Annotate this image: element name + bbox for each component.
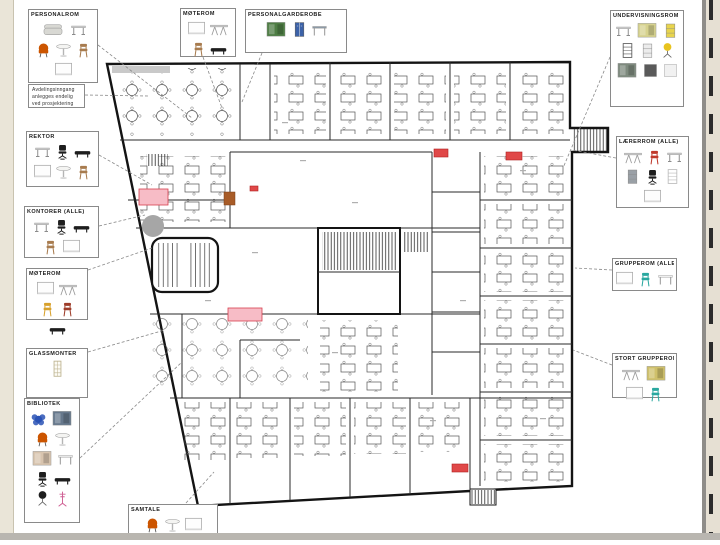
photo-thumb [29, 449, 55, 468]
callout-moterom[interactable]: MØTEROM [180, 8, 236, 57]
amphitheatre [152, 238, 218, 292]
locker-thumb [290, 20, 309, 39]
photo-thumb [614, 61, 640, 80]
chair-thumb [189, 39, 208, 58]
trestle-table-thumb [622, 147, 644, 166]
callout-title: MØTEROM [29, 271, 85, 278]
callout-title: GRUPPEROM (ALLE) [615, 261, 674, 268]
callout-title: SAMTALE [131, 507, 215, 514]
annotation-note[interactable]: Avdelingsinngang anlegges endelig ved pr… [28, 84, 85, 108]
callout-title: REKTOR [29, 134, 96, 141]
bench-thumb [209, 39, 228, 58]
whiteboard-thumb [53, 60, 74, 79]
callout-personalrom[interactable]: PERSONALROM [28, 9, 98, 83]
callout-title: PERSONALROM [31, 12, 95, 19]
bench-thumb [53, 469, 72, 488]
armchair-thumb [33, 429, 52, 448]
note-line: ved prosjektering [32, 101, 81, 108]
callout-title: GLASSMONTER [29, 351, 85, 358]
callout-bibliotek[interactable]: BIBLIOTEK [24, 398, 80, 523]
callout-title: LÆRERROM (ALLE) [619, 139, 686, 146]
round-table-thumb [53, 429, 72, 448]
chair-thumb [74, 162, 93, 181]
whiteboard-thumb [624, 384, 645, 403]
whiteboard-thumb [614, 269, 635, 288]
furniture-thumbnails [29, 359, 85, 378]
table-thumb [56, 449, 75, 468]
desk-thumb [32, 217, 51, 236]
sofa-thumb [38, 20, 68, 39]
trestle-table-thumb [208, 19, 230, 38]
whiteboard-thumb [32, 162, 53, 181]
bench-thumb [48, 319, 67, 338]
furniture-thumbnails [27, 409, 77, 508]
office-chair-thumb [33, 469, 52, 488]
table-thumb [310, 20, 329, 39]
chair-thumb [41, 237, 60, 256]
round-table-thumb [54, 40, 73, 59]
callout-grupperom[interactable]: GRUPPEROM (ALLE) [612, 258, 677, 291]
note-line: anlegges endelig [32, 94, 81, 101]
callout-title: UNDERVISNINGSROM (ALLE) [613, 13, 681, 20]
whiteboard-thumb [186, 19, 207, 38]
chair-thumb [636, 269, 655, 288]
furniture-thumbnails [131, 515, 215, 534]
shelf-thumb [618, 41, 637, 60]
furniture-thumbnails [31, 20, 95, 79]
callout-title: STORT GRUPPEROM [615, 356, 674, 363]
callout-rektor[interactable]: REKTOR [26, 131, 99, 187]
whiteboard-thumb [35, 279, 56, 298]
whiteboard-thumb [642, 187, 663, 206]
chair-thumb [646, 384, 665, 403]
desk-thumb [614, 21, 633, 40]
furniture-thumbnails [29, 279, 85, 338]
chair-thumb [58, 299, 77, 318]
bench-thumb [73, 142, 92, 161]
armchair-thumb [143, 515, 162, 534]
shelf-thumb [663, 167, 682, 186]
furniture-thumbnails [619, 147, 686, 206]
callout-title: PERSONALGARDEROBE [248, 12, 344, 19]
round-table-thumb [163, 515, 182, 534]
pouf-thumb [29, 409, 48, 428]
whiteboard-thumb [183, 515, 204, 534]
table-thumb [656, 269, 675, 288]
panel-thumb [641, 61, 660, 80]
cabinet-thumb [638, 41, 657, 60]
trestle-table-thumb [57, 279, 79, 298]
furniture-thumbnails [615, 364, 674, 403]
furniture-thumbnails [248, 20, 344, 39]
photo-thumb [263, 20, 289, 39]
photo-thumb [643, 364, 669, 383]
callout-personalgarderobe[interactable]: PERSONALGARDEROBE [245, 9, 347, 53]
armchair-thumb [34, 40, 53, 59]
desk-thumb [33, 142, 52, 161]
office-chair-thumb [643, 167, 662, 186]
display-cabinet-thumb [48, 359, 67, 378]
furniture-thumbnails [29, 142, 96, 181]
furniture-thumbnails [27, 217, 96, 256]
stool-thumb [33, 489, 52, 508]
photo-thumb [49, 409, 75, 428]
cabinet-thumb [623, 167, 642, 186]
desk-thumb [69, 20, 88, 39]
office-chair-thumb [52, 217, 71, 236]
furniture-thumbnails [615, 269, 674, 288]
desk-thumb [665, 147, 684, 166]
office-chair-thumb [53, 142, 72, 161]
chair-thumb [38, 299, 57, 318]
gray-circle-marker [142, 215, 164, 237]
coat-stand-thumb [53, 489, 72, 508]
panel-thumb [661, 61, 680, 80]
callout-title: BIBLIOTEK [27, 401, 77, 408]
orange-room-marker [224, 192, 235, 205]
callout-glassmonter[interactable]: GLASSMONTER [26, 348, 88, 398]
round-table-thumb [54, 162, 73, 181]
callout-title: KONTORER (ALLE) [27, 209, 96, 216]
callout-title: MØTEROM [183, 11, 233, 18]
photo-thumb [634, 21, 660, 40]
chair-thumb [645, 147, 664, 166]
chair-thumb [74, 40, 93, 59]
cabinet-thumb [661, 21, 680, 40]
whiteboard-thumb [61, 237, 82, 256]
callout-kontorer[interactable]: KONTORER (ALLE) [24, 206, 99, 258]
trestle-table-thumb [620, 364, 642, 383]
bench-thumb [72, 217, 91, 236]
callout-moterom-2[interactable]: MØTEROM [26, 268, 88, 320]
stage-strip [112, 66, 170, 73]
furniture-thumbnails [183, 19, 233, 58]
callout-undervisningsrom[interactable]: UNDERVISNINGSROM (ALLE) [610, 10, 684, 107]
note-line: Avdelingsinngang [32, 87, 81, 94]
callout-stort-grupperom[interactable]: STORT GRUPPEROM [612, 353, 677, 398]
stool-thumb [658, 41, 677, 60]
canvas-bottom-bar [0, 533, 720, 540]
furniture-thumbnails [613, 21, 681, 80]
callout-laererrom[interactable]: LÆRERROM (ALLE) [616, 136, 689, 208]
